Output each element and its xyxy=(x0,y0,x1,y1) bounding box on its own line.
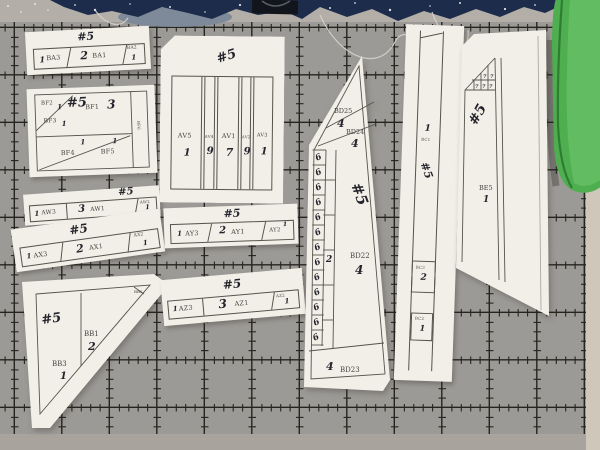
piece-number: 1 xyxy=(177,230,182,237)
piece-number: 1 xyxy=(420,324,426,332)
piece-number: 1 xyxy=(39,55,45,63)
piece-number: 1 xyxy=(131,53,136,60)
piece-label: BD23 xyxy=(340,366,360,374)
piece-label: AW3 xyxy=(41,210,56,217)
piece-number: 1 xyxy=(57,103,62,110)
template-av: #5 AV5 1 AV4 9 AV1 7 AV2 9 AV3 1 xyxy=(159,35,285,203)
piece-label: AY3 xyxy=(185,230,199,237)
piece-label: BC2 xyxy=(415,317,424,321)
piece-label: AW1 xyxy=(90,206,105,213)
template-ba-strip: 1 BA3 2 BA1 BA2 1 xyxy=(33,43,146,70)
piece-label: BF2 xyxy=(41,101,53,107)
piece-number: 3 xyxy=(218,298,227,311)
template-az-strip: 1 AZ3 3 AZ1 AZ2 1 xyxy=(167,289,300,319)
divider xyxy=(216,77,218,189)
piece-label: BF6 xyxy=(136,121,140,130)
piece-label: BF5 xyxy=(101,148,115,155)
handwritten-number: #5 xyxy=(118,187,134,198)
divider xyxy=(66,48,71,67)
divider xyxy=(237,77,239,189)
divider xyxy=(202,299,204,316)
piece-number: 4 xyxy=(351,137,359,150)
piece-number: 1 xyxy=(34,210,39,217)
piece-label: BA2 xyxy=(127,46,137,51)
piece-number: 3 xyxy=(78,204,86,214)
template-bf-lines xyxy=(27,85,158,177)
piece-label: BD22 xyxy=(350,252,370,260)
piece-number: 1 xyxy=(284,297,289,304)
piece-number: 2 xyxy=(325,255,332,265)
divider xyxy=(271,292,275,309)
divider xyxy=(200,77,202,189)
piece-label: BF4 xyxy=(61,150,75,157)
handwritten-number: #5 xyxy=(40,310,62,328)
piece-label: AZ1 xyxy=(234,300,248,308)
divider xyxy=(128,233,131,252)
piece-number: 9 xyxy=(207,147,214,157)
piece-number: 2 xyxy=(80,50,88,61)
divider xyxy=(60,242,63,261)
piece-label: BD25 xyxy=(334,107,352,115)
piece-label: BF1 xyxy=(85,104,99,111)
piece-label: AY2 xyxy=(269,228,281,234)
piece-number: 2 xyxy=(87,340,96,353)
piece-label: AY1 xyxy=(231,229,245,236)
piece-number: 2 xyxy=(420,274,427,283)
template-be: 7 7 7 7 7 #5 BE5 1 xyxy=(450,28,552,328)
piece-label: AV5 xyxy=(178,133,192,140)
handwritten-number: #5 xyxy=(223,208,240,220)
divider xyxy=(213,77,215,189)
piece-number: 1 xyxy=(80,138,85,145)
handwritten-number: #5 xyxy=(77,31,94,43)
quilting-templates-photo: #5 1 BA3 2 BA1 BA2 1 BF2 1 #5 BF1 3 BF3 … xyxy=(0,0,600,450)
piece-number: 1 xyxy=(62,120,67,127)
piece-label: AV4 xyxy=(205,135,214,139)
template-bb: #5 BB1 2 BB3 1 BB2 xyxy=(4,266,174,430)
template-ay: #5 1 AY3 2 AY1 AY2 1 xyxy=(163,204,298,249)
divider xyxy=(261,222,266,240)
handwritten-number: #5 xyxy=(222,277,241,291)
piece-label: BF3 xyxy=(44,118,57,124)
handwritten-number: #5 xyxy=(215,47,238,65)
piece-number: 1 xyxy=(184,149,191,159)
svg-text:7: 7 xyxy=(483,74,487,80)
piece-number: 1 xyxy=(172,305,177,312)
template-ba: #5 1 BA3 2 BA1 BA2 1 xyxy=(25,26,151,75)
piece-number: 1 xyxy=(60,371,67,382)
piece-label: AX1 xyxy=(89,243,104,251)
piece-number: 1 xyxy=(424,125,431,134)
svg-text:7: 7 xyxy=(489,84,493,90)
piece-number: 1 xyxy=(142,239,148,247)
piece-label: BA1 xyxy=(92,52,107,59)
piece-label: BE5 xyxy=(479,184,493,192)
piece-number: 9 xyxy=(244,147,251,157)
piece-number: 1 xyxy=(283,222,287,228)
divider xyxy=(252,77,254,189)
svg-text:7: 7 xyxy=(482,84,486,90)
piece-number: 1 xyxy=(26,252,32,260)
svg-text:7: 7 xyxy=(490,74,494,80)
piece-label: BD24 xyxy=(346,128,364,136)
piece-label: BA3 xyxy=(46,54,61,61)
piece-number: 1 xyxy=(261,147,268,157)
piece-label: AX3 xyxy=(33,251,48,259)
divider xyxy=(240,77,242,189)
piece-number: 2 xyxy=(75,243,84,255)
piece-number: 4 xyxy=(337,117,345,130)
piece-number: 3 xyxy=(107,98,116,110)
piece-number: 4 xyxy=(355,263,363,277)
piece-number: 2 xyxy=(219,226,226,236)
divider xyxy=(207,224,212,242)
piece-label: AV1 xyxy=(222,133,236,140)
divider xyxy=(66,204,68,219)
piece-label: BC3 xyxy=(416,266,425,270)
piece-number: 1 xyxy=(483,195,489,205)
template-bc-box: BC2 1 xyxy=(410,312,433,341)
template-bd: BD25 4 BD24 4 #5 6 6 6 6 6 6 6 6 6 6 6 6… xyxy=(296,50,400,396)
divider xyxy=(203,77,205,189)
piece-label: AZ3 xyxy=(179,305,193,313)
piece-label: AV2 xyxy=(242,135,251,139)
template-ay-strip: 1 AY3 2 AY1 AY2 1 xyxy=(170,220,295,244)
template-bf: BF2 1 #5 BF1 3 BF3 1 BF6 1 BF4 1 BF5 xyxy=(27,85,158,177)
template-bc-box: BC3 2 xyxy=(411,260,436,293)
piece-label: BB1 xyxy=(84,330,99,338)
piece-label: BB2 xyxy=(134,289,143,294)
piece-label: BC1 xyxy=(421,138,430,142)
piece-number: 1 xyxy=(112,137,117,144)
piece-number: 4 xyxy=(326,360,334,373)
handwritten-number: #5 xyxy=(69,222,89,236)
svg-text:7: 7 xyxy=(475,84,479,90)
piece-label: AV3 xyxy=(257,133,268,138)
piece-number: 7 xyxy=(226,147,234,158)
piece-label: BB3 xyxy=(52,360,67,368)
template-av-strip: AV5 1 AV4 9 AV1 7 AV2 9 AV3 1 xyxy=(170,75,273,190)
